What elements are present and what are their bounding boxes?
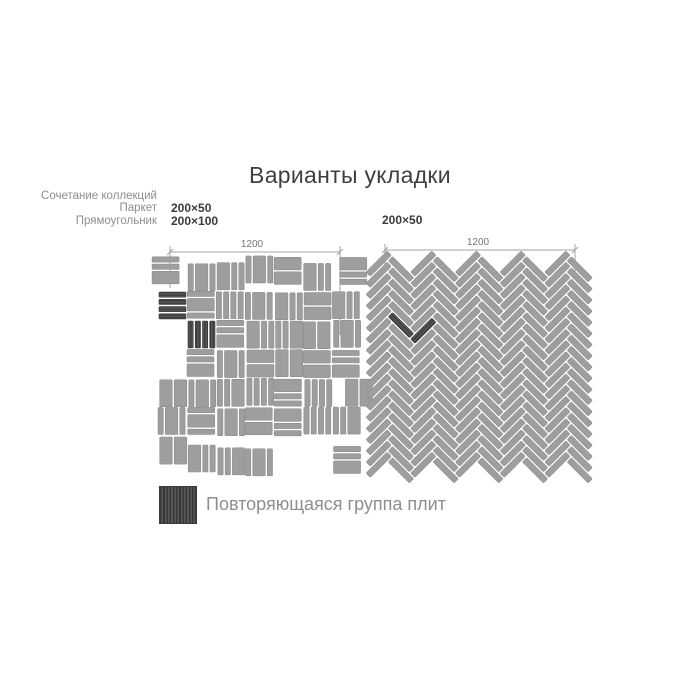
tile-plank (188, 429, 215, 434)
tile-plank (217, 328, 244, 333)
tile-plank (158, 407, 163, 434)
tile-plank (160, 437, 173, 464)
tile-plank (290, 321, 303, 348)
tile-plank (341, 407, 346, 434)
tile-plank (189, 380, 194, 407)
tile-plank (217, 263, 230, 290)
left-tile-size-1: 200×50 (171, 202, 218, 215)
tile-plank (334, 461, 361, 474)
tile-plank (268, 256, 273, 283)
highlight-plank (203, 321, 208, 348)
tile-plank (187, 349, 214, 354)
tile-plank (245, 292, 250, 319)
tile-plank (312, 380, 317, 407)
page-title: Варианты укладки (0, 162, 700, 189)
tile-plank (187, 364, 214, 377)
collection-label-line2: Паркет (10, 202, 157, 214)
repeating-group-swatch (160, 487, 196, 523)
tile-plank (152, 271, 179, 284)
herringbone-pattern (365, 236, 605, 486)
tile-plank (261, 321, 266, 348)
tile-plank (261, 378, 266, 405)
tile-plank (276, 321, 281, 348)
tile-plank (216, 292, 221, 319)
tile-plank (334, 454, 361, 459)
tile-plank (348, 407, 361, 434)
tile-plank (269, 321, 274, 348)
highlight-plank (210, 321, 215, 348)
tile-plank (247, 350, 274, 363)
tile-plank (225, 448, 230, 475)
tile-plank (290, 350, 303, 377)
tile-plank (232, 448, 245, 475)
tile-plank (224, 379, 229, 406)
tile-plank (246, 449, 251, 476)
tile-plank (247, 365, 274, 378)
tile-plank (211, 380, 216, 407)
tile-plank (327, 380, 332, 407)
left-tile-sizes: 200×50 200×100 (171, 202, 218, 227)
tile-plank (217, 379, 222, 406)
tile-plank (210, 264, 215, 291)
tile-plank (160, 380, 173, 407)
tile-plank (224, 351, 237, 378)
tile-plank (269, 378, 274, 405)
tile-plank (187, 298, 214, 311)
tile-plank (318, 322, 331, 349)
tile-plank (347, 292, 352, 319)
tile-plank (217, 351, 222, 378)
tile-plank (274, 431, 301, 436)
highlight-plank (159, 314, 186, 319)
tile-plank (218, 448, 223, 475)
tile-plank (305, 380, 310, 407)
tile-plank (267, 292, 272, 319)
tile-plank (274, 409, 301, 422)
tile-plank (253, 292, 266, 319)
tile-plank (311, 407, 316, 434)
tile-plank (239, 263, 244, 290)
tile-plank (232, 263, 237, 290)
tile-plank (318, 263, 323, 290)
tile-plank (303, 365, 330, 378)
highlight-plank (159, 299, 186, 304)
tile-plank (325, 263, 330, 290)
tile-plank (253, 449, 266, 476)
tile-plank (332, 365, 359, 378)
tile-plank (245, 422, 272, 435)
tile-plank (354, 292, 359, 319)
tile-plank (318, 407, 323, 434)
tile-plank (303, 351, 330, 364)
tile-plank (187, 291, 214, 296)
tile-plank (239, 351, 244, 378)
highlight-plank (195, 321, 200, 348)
tile-plank (246, 256, 251, 283)
tile-plank (152, 264, 179, 269)
tile-plank (333, 407, 338, 434)
tile-plank (238, 292, 243, 319)
tile-plank (247, 321, 260, 348)
tile-plank (326, 407, 331, 434)
tile-plank (187, 313, 214, 318)
tile-plank (152, 257, 179, 262)
tile-plank (188, 264, 193, 291)
tile-plank (319, 380, 324, 407)
layout-options-diagram: Варианты укладки Сочетание коллекций Пар… (0, 0, 700, 700)
tile-plank (217, 320, 244, 325)
tile-plank (297, 293, 302, 320)
tile-plank (274, 423, 301, 428)
tile-plank (267, 449, 272, 476)
highlight-plank (159, 292, 186, 297)
tile-plank (188, 415, 215, 428)
tile-plank (218, 409, 223, 436)
tile-plank (274, 257, 301, 270)
tile-plank (203, 445, 208, 472)
tile-plank (275, 293, 288, 320)
tile-plank (334, 320, 339, 347)
tile-plank (334, 446, 361, 451)
tile-plank (245, 408, 272, 421)
tile-plank (345, 379, 358, 406)
tile-plank (225, 409, 238, 436)
tile-plank (239, 409, 244, 436)
legend-label: Повторяющаяся группа плит (206, 494, 446, 515)
tile-plank (274, 394, 301, 399)
highlight-plank (188, 321, 193, 348)
tile-plank (332, 292, 345, 319)
tile-plank (165, 407, 178, 434)
tile-plank (196, 380, 209, 407)
tile-plank (274, 379, 301, 392)
highlight-plank (159, 307, 186, 312)
tile-plank (195, 264, 208, 291)
tile-plank (304, 407, 309, 434)
tile-plank (210, 445, 215, 472)
tile-plank (174, 380, 187, 407)
tile-plank (217, 335, 244, 348)
tile-plank (188, 445, 201, 472)
tile-plank (290, 293, 295, 320)
tile-plank (174, 437, 187, 464)
tile-plank (303, 322, 316, 349)
tile-plank (341, 320, 354, 347)
tile-plank (304, 263, 317, 290)
tile-plank (247, 378, 252, 405)
tile-plank (232, 379, 245, 406)
tile-plank (274, 401, 301, 406)
tile-plank (254, 378, 259, 405)
tile-plank (355, 320, 360, 347)
left-tile-size-2: 200×100 (171, 215, 218, 228)
tile-plank (304, 293, 331, 306)
collection-label-line3: Прямоугольник (10, 215, 157, 227)
tile-plank (180, 407, 185, 434)
tile-plank (224, 292, 229, 319)
tile-plank (187, 357, 214, 362)
tile-plank (340, 272, 367, 277)
right-tile-size: 200×50 (382, 213, 422, 227)
tile-plank (231, 292, 236, 319)
tile-plank (332, 358, 359, 363)
tile-plank (276, 350, 289, 377)
tile-plank (253, 256, 266, 283)
mixed-parquet-pattern (140, 236, 380, 486)
tile-plank (332, 350, 359, 355)
tile-plank (274, 272, 301, 285)
tile-plank (340, 279, 367, 284)
tile-plank (283, 321, 288, 348)
tile-plank (340, 257, 367, 270)
collection-labels: Сочетание коллекций Паркет Прямоугольник (10, 190, 157, 227)
collection-label-line1: Сочетание коллекций (10, 190, 157, 202)
tile-plank (304, 307, 331, 320)
tile-plank (188, 407, 215, 412)
